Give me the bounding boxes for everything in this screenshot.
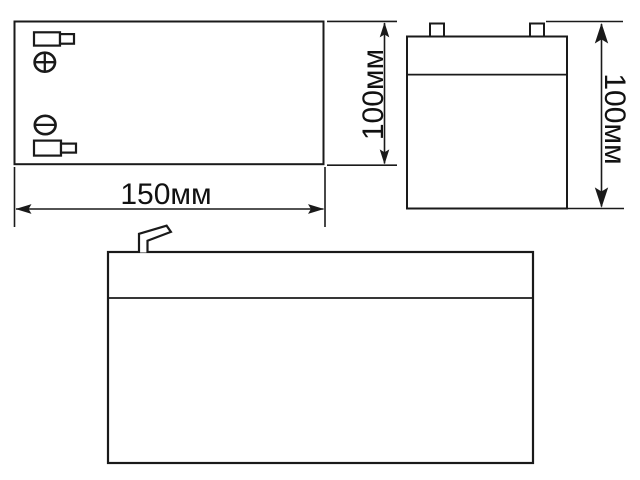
svg-text:100мм: 100мм <box>357 49 390 140</box>
svg-text:100мм: 100мм <box>598 73 631 164</box>
svg-text:150мм: 150мм <box>120 178 211 211</box>
